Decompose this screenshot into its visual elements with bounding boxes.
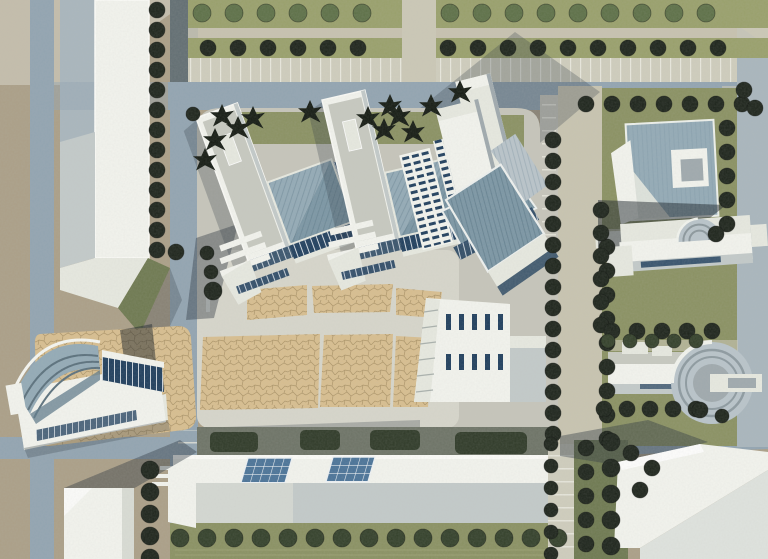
aerial-model-scene: Aerial photograph of an architectural ur… (0, 0, 768, 559)
photo-grain (0, 0, 768, 559)
model-photograph: Aerial photograph of an architectural ur… (0, 0, 768, 559)
